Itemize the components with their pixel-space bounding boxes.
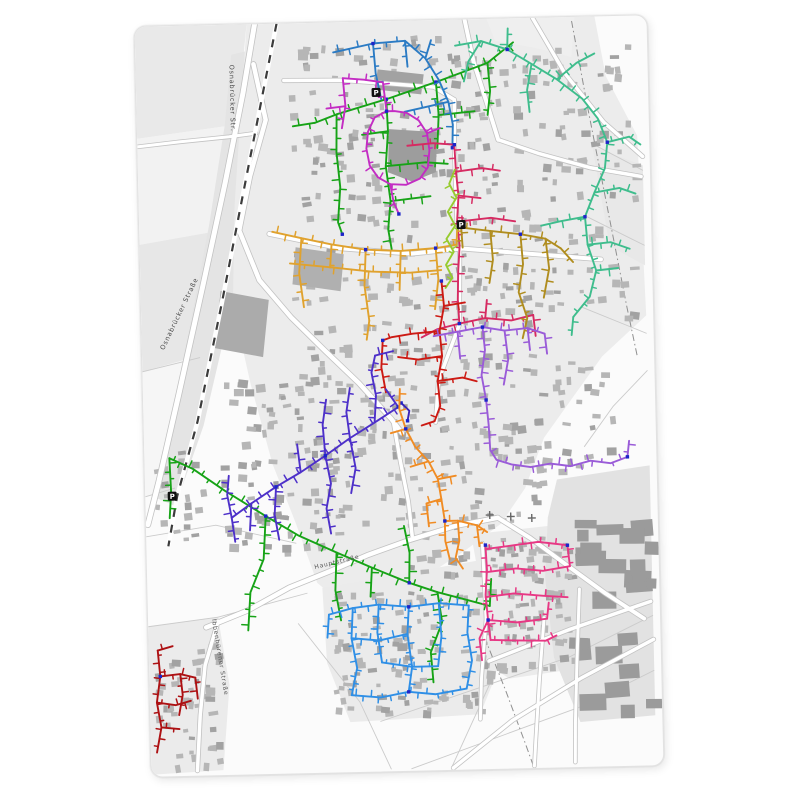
- network-node: [505, 48, 508, 51]
- map-panel: PPPOsnabrücker Str.Osnabrücker StraßeHau…: [134, 14, 665, 777]
- network-node: [440, 279, 443, 282]
- page-background: PPPOsnabrücker Str.Osnabrücker StraßeHau…: [0, 0, 800, 800]
- network-node: [404, 427, 407, 430]
- network-node: [481, 325, 484, 328]
- network-node: [324, 454, 327, 457]
- svg-text:P: P: [458, 221, 463, 229]
- network-node: [397, 212, 400, 215]
- network-node: [434, 246, 437, 249]
- network-node: [583, 215, 586, 218]
- map-canvas: PPPOsnabrücker Str.Osnabrücker StraßeHau…: [135, 15, 664, 776]
- network-node: [274, 485, 277, 488]
- network-node: [519, 232, 522, 235]
- network-node: [606, 140, 609, 143]
- parking-icon: P: [372, 88, 381, 97]
- network-node: [407, 605, 410, 608]
- network-node: [443, 519, 446, 522]
- cemetery-cross-icon: [528, 514, 536, 522]
- network-node: [566, 543, 569, 546]
- svg-text:P: P: [373, 89, 378, 97]
- network-node: [341, 233, 344, 236]
- cemetery-cross-icon: [507, 512, 515, 520]
- network-node: [408, 581, 411, 584]
- network-node: [453, 143, 456, 146]
- network-node: [364, 248, 367, 251]
- network-node: [458, 322, 461, 325]
- svg-text:P: P: [170, 493, 175, 501]
- network-node: [484, 398, 487, 401]
- network-node: [626, 455, 629, 458]
- network-node: [484, 543, 487, 546]
- parking-icon: P: [168, 492, 177, 501]
- network-node: [385, 109, 388, 112]
- network-node: [159, 675, 162, 678]
- network-node: [406, 419, 409, 422]
- network-node: [381, 339, 384, 342]
- network-node: [407, 690, 410, 693]
- network-node: [371, 42, 374, 45]
- network-node: [264, 514, 267, 517]
- parking-icon: P: [457, 220, 466, 229]
- street-label: Osnabrücker Str.: [227, 65, 237, 132]
- network-node: [486, 618, 489, 621]
